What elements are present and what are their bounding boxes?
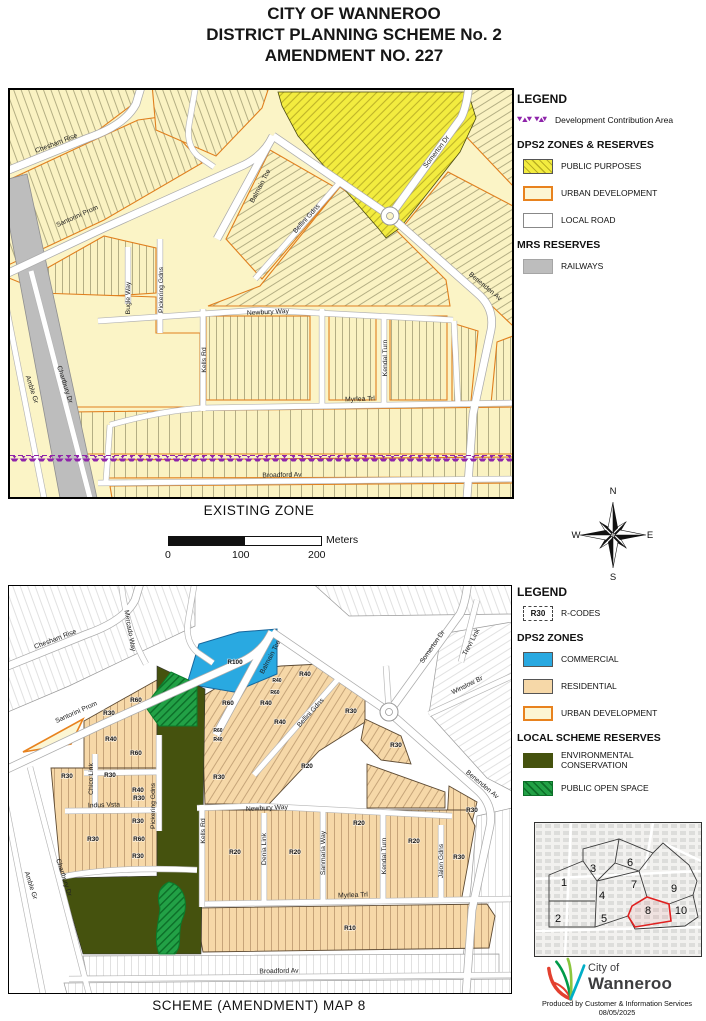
roundabout — [381, 207, 399, 225]
railways-swatch — [523, 259, 553, 274]
street-label: Kells Rd — [201, 347, 208, 373]
rcode-label: R20 — [353, 820, 365, 827]
development-contribution-boundary — [10, 456, 512, 462]
street-label: Myrlea Trl — [338, 891, 369, 899]
locality-inset-map: 12345678910 — [534, 822, 702, 957]
legend-item-dca: Development Contribution Area — [517, 112, 706, 129]
wanneroo-logo-icon — [544, 956, 586, 1002]
rcode-label: R30 — [61, 773, 73, 780]
legend-item-commercial: COMMERCIAL — [523, 651, 706, 668]
scheme-map-legend: LEGEND R30 R-CODES DPS2 ZONES COMMERCIAL… — [517, 585, 706, 807]
inset-area-number: 4 — [599, 890, 605, 902]
rcode-label: R40 — [105, 736, 117, 743]
compass-w: W — [572, 530, 581, 541]
inset-area-number: 1 — [561, 877, 567, 889]
locality-inset-svg: 12345678910 — [535, 823, 701, 956]
rcode-label: R40 — [213, 737, 222, 743]
scheme-amendment-map: R100R60R30R40R60R60R40R60R40R40R40R60R40… — [8, 585, 512, 994]
credit-line: Produced by Customer & Information Servi… — [528, 999, 706, 1008]
legend-item-urban-development: URBAN DEVELOPMENT — [523, 185, 706, 202]
legend-item-urban-development: URBAN DEVELOPMENT — [523, 705, 706, 722]
street-label: Jalon Gdns — [438, 843, 445, 878]
urban-development-swatch — [523, 186, 553, 201]
local-road-swatch — [523, 213, 553, 228]
roundabout — [380, 703, 398, 721]
rcode-label: R60 — [130, 697, 142, 704]
street-label: Denia Link — [261, 832, 268, 865]
residential-swatch — [523, 679, 553, 694]
rcode-label: R40 — [260, 700, 272, 707]
scheme-map-caption: SCHEME (AMENDMENT) MAP 8 — [8, 998, 510, 1013]
rcode-label: R30 — [345, 708, 357, 715]
rcode-label: R30 — [87, 836, 99, 843]
rcode-label: R60 — [130, 750, 142, 757]
compass-e: E — [647, 530, 653, 541]
inset-area-number: 5 — [601, 913, 607, 925]
rcode-label: R30 — [132, 853, 144, 860]
legend-item-rcodes: R30 R-CODES — [523, 605, 706, 622]
legend-heading: LEGEND — [517, 92, 706, 106]
legend-item-environmental: ENVIRONMENTAL CONSERVATION — [523, 751, 706, 770]
title-line1: CITY OF WANNEROO — [0, 3, 706, 24]
credit-date: 08/05/2025 — [528, 1008, 706, 1017]
street-label: Myrlea Trl — [345, 395, 376, 403]
street-label: Broadford Av — [259, 968, 299, 976]
commercial-swatch — [523, 652, 553, 667]
legend-item-railways: RAILWAYS — [523, 258, 706, 275]
dca-symbol-icon — [517, 113, 547, 128]
environmental-swatch — [523, 753, 553, 768]
rcode-label: R60 — [270, 690, 279, 696]
page-title: CITY OF WANNEROO DISTRICT PLANNING SCHEM… — [0, 3, 706, 66]
rcode-label: R20 — [289, 849, 301, 856]
rcode-label: R100 — [227, 659, 243, 666]
legend-item-residential: RESIDENTIAL — [523, 678, 706, 695]
compass-s: S — [610, 572, 616, 582]
inset-area-number: 6 — [627, 857, 633, 869]
scale-bar: 0 100 200 Meters — [168, 536, 368, 566]
street-label: Kendal Turn — [381, 837, 388, 874]
rcode-label: R60 — [213, 728, 222, 734]
existing-zone-map: Chesham RiseSantorini PromBalmain TceBel… — [8, 88, 514, 499]
rcode-label: R60 — [222, 700, 234, 707]
inset-area-number: 10 — [675, 905, 687, 917]
legend-item-open-space: PUBLIC OPEN SPACE — [523, 780, 706, 797]
rcode-label: R30 — [466, 807, 478, 814]
inset-area-number: 9 — [671, 883, 677, 895]
rcode-label: R30 — [133, 795, 145, 802]
street-label: Pickering Gdns — [158, 266, 165, 313]
dca-label: Development Contribution Area — [555, 116, 673, 126]
street-label: Broadford Av — [262, 472, 302, 480]
scale-tick-100: 100 — [232, 549, 250, 561]
logo-city-of: City of — [588, 962, 672, 974]
public-purposes-swatch — [523, 159, 553, 174]
dps2-zones-heading: DPS2 ZONES — [517, 632, 706, 644]
title-line3: AMENDMENT NO. 227 — [0, 45, 706, 66]
rcode-label: R20 — [408, 838, 420, 845]
street-label: Bugle Way — [125, 281, 132, 314]
existing-zone-legend: LEGEND Development Contribution Area DPS… — [517, 92, 706, 285]
logo-wanneroo: Wanneroo — [588, 974, 672, 994]
title-line2: DISTRICT PLANNING SCHEME No. 2 — [0, 24, 706, 45]
legend-item-public-purposes: PUBLIC PURPOSES — [523, 158, 706, 175]
street-label: Pickering Gdns — [150, 782, 157, 829]
open-space-swatch — [523, 781, 553, 796]
rcodes-swatch: R30 — [523, 606, 553, 621]
legend-item-local-road: LOCAL ROAD — [523, 212, 706, 229]
rcode-label: R20 — [229, 849, 241, 856]
street-label: Indus Vsta — [88, 801, 121, 809]
urban-development-swatch — [523, 706, 553, 721]
inset-area-number: 8 — [645, 905, 651, 917]
rcode-label: R30 — [453, 854, 465, 861]
scale-tick-0: 0 — [165, 549, 171, 561]
rcode-label: R20 — [301, 763, 313, 770]
rcode-label: R60 — [133, 836, 145, 843]
dps2-zones-reserves-heading: DPS2 ZONES & RESERVES — [517, 139, 706, 151]
legend-heading: LEGEND — [517, 585, 706, 599]
street-label: Sanmaria Way — [320, 830, 327, 875]
compass-rose: N E S W — [570, 484, 656, 582]
rcode-label: R40 — [132, 787, 144, 794]
rcode-label: R30 — [132, 818, 144, 825]
credit-text: Produced by Customer & Information Servi… — [528, 999, 706, 1017]
rcode-label: R30 — [103, 710, 115, 717]
rcode-label: R40 — [274, 719, 286, 726]
rcode-label: R30 — [390, 742, 402, 749]
rcode-label: R10 — [344, 925, 356, 932]
mrs-reserves-heading: MRS RESERVES — [517, 239, 706, 251]
existing-zone-map-svg: Chesham RiseSantorini PromBalmain TceBel… — [10, 90, 512, 497]
scale-bar-graphic — [168, 536, 322, 546]
street-label: Kendal Turn — [382, 339, 389, 376]
rcode-label: R40 — [272, 678, 281, 684]
inset-area-number: 2 — [555, 913, 561, 925]
scale-tick-200: 200 — [308, 549, 326, 561]
inset-area-number: 7 — [631, 879, 637, 891]
compass-n: N — [610, 486, 617, 497]
rcode-label: R30 — [104, 772, 116, 779]
local-scheme-reserves-heading: LOCAL SCHEME RESERVES — [517, 732, 706, 744]
inset-area-number: 3 — [590, 863, 596, 875]
existing-zone-caption: EXISTING ZONE — [8, 503, 510, 518]
street-label: Chico Link — [88, 763, 95, 795]
scheme-amendment-map-svg: R100R60R30R40R60R60R40R60R40R40R40R60R40… — [9, 586, 511, 993]
scale-unit: Meters — [326, 534, 358, 546]
rcode-label: R40 — [299, 671, 311, 678]
street-label: Kells Rd — [200, 818, 207, 844]
rcode-label: R30 — [213, 774, 225, 781]
city-of-wanneroo-logo: City of Wanneroo — [544, 956, 704, 1002]
planning-amendment-page: CITY OF WANNEROO DISTRICT PLANNING SCHEM… — [0, 0, 706, 1021]
